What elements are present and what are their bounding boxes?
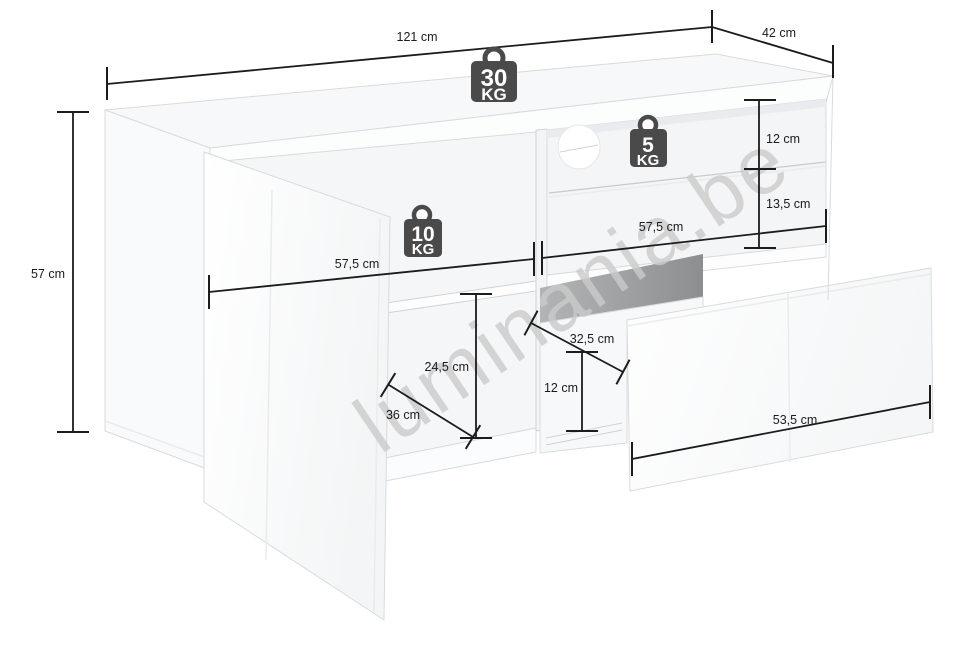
cabinet-left-side-panel xyxy=(105,110,210,470)
cable-hole xyxy=(558,125,600,169)
cabinet-right-front-edge xyxy=(828,76,833,300)
diagram-svg: luminania.be 121 cm 42 cm 57 cm 57,5 cm xyxy=(0,0,960,667)
weight-limit-glass-unit: KG xyxy=(637,152,660,169)
dim-label-below-glass-clearance: 13,5 cm xyxy=(766,197,810,211)
furniture-dimension-diagram: luminania.be 121 cm 42 cm 57 cm 57,5 cm xyxy=(0,0,960,667)
dim-label-right-interior-width: 57,5 cm xyxy=(639,220,683,234)
dim-label-left-interior-width: 57,5 cm xyxy=(335,257,379,271)
dim-label-drawer-interior-depth: 32,5 cm xyxy=(570,332,614,346)
dim-label-drawer-front-width: 53,5 cm xyxy=(773,413,817,427)
dim-label-left-compartment-height: 24,5 cm xyxy=(425,360,469,374)
weight-limit-middle-unit: KG xyxy=(412,241,435,258)
dim-label-overall-height: 57 cm xyxy=(31,267,65,281)
weight-limit-top-icon: 30 KG xyxy=(471,49,517,104)
dim-label-overall-depth: 42 cm xyxy=(762,26,796,40)
dim-label-glass-shelf-clearance: 12 cm xyxy=(766,132,800,146)
dim-label-overall-width: 121 cm xyxy=(397,30,438,44)
dim-overall-height: 57 cm xyxy=(31,112,89,432)
dim-label-drawer-interior-height: 12 cm xyxy=(544,381,578,395)
dim-label-left-compartment-depth: 36 cm xyxy=(386,408,420,422)
weight-limit-top-unit: KG xyxy=(481,85,507,104)
